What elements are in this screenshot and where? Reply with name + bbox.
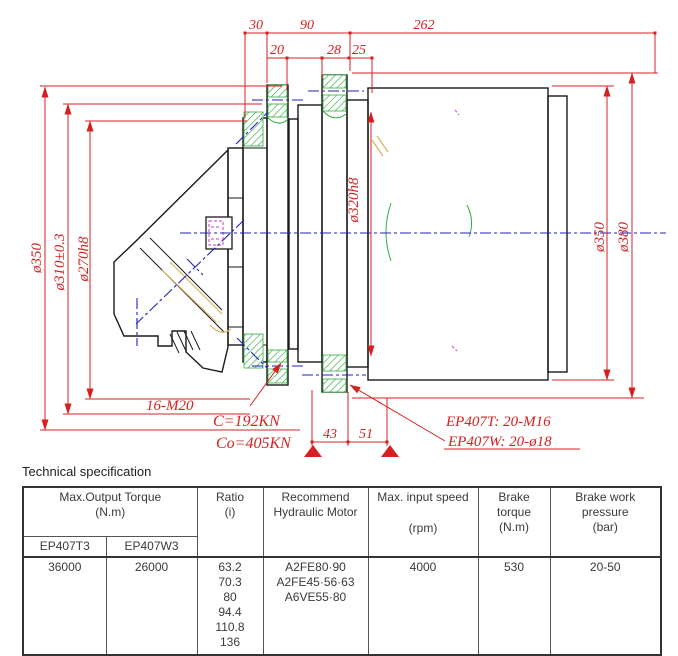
- motor-value: A6VE55·80: [267, 590, 365, 605]
- cell-motors: A2FE80·90 A2FE45·56·63 A6VE55·80: [263, 557, 368, 655]
- cell-brake-torque: 530: [478, 557, 550, 655]
- dim-dia380: ø380: [616, 222, 632, 254]
- ratio-value: 136: [201, 635, 260, 650]
- header-ratio: Ratio (i): [197, 487, 263, 557]
- bolt-sections: [244, 75, 472, 392]
- header-ratio-line1: Ratio: [201, 490, 260, 505]
- cell-speed: 4000: [368, 557, 478, 655]
- header-output-torque: Max.Output Torque (N.m): [23, 487, 197, 537]
- header-brake-torque: Brake torque (N.m): [478, 487, 550, 557]
- note-ep407t: EP407T: 20-M16: [445, 414, 551, 430]
- note-c-dynamic: C=192KN: [213, 413, 281, 430]
- dim-dia350-right: ø350: [592, 222, 608, 254]
- subheader-ep407t3: EP407T3: [23, 537, 106, 558]
- header-pressure-line1: Brake work: [554, 490, 658, 505]
- section-title: Technical specification: [22, 464, 678, 479]
- header-speed-line2: (rpm): [372, 521, 475, 536]
- spline-details: [162, 136, 388, 332]
- header-pressure: Brake work pressure (bar): [550, 487, 661, 557]
- note-ep407w: EP407W: 20-ø18: [447, 434, 552, 450]
- ratio-value: 70.3: [201, 575, 260, 590]
- motor-foot-hatch: [170, 331, 200, 353]
- header-ratio-line2: (i): [201, 505, 260, 520]
- dim-43: 43: [323, 427, 337, 442]
- header-speed: Max. input speed (rpm): [368, 487, 478, 557]
- technical-drawing: 30 90 262 20 28 25 43 51 ø350 ø310±0.3 ø…: [0, 0, 678, 460]
- dim-262: 262: [414, 18, 435, 33]
- cell-pressure: 20-50: [550, 557, 661, 655]
- subheader-ep407w3: EP407W3: [106, 537, 197, 558]
- dim-90: 90: [300, 18, 314, 33]
- datum-triangle-left: [304, 445, 322, 457]
- header-brake-line2: (N.m): [482, 520, 547, 535]
- header-output-torque-unit: (N.m): [27, 505, 194, 520]
- dim-dia320: ø320h8: [346, 177, 362, 224]
- motor-silhouette: [114, 150, 228, 372]
- ratio-value: 94.4: [201, 605, 260, 620]
- header-output-torque-title: Max.Output Torque: [27, 490, 194, 505]
- dim-dia270: ø270h8: [76, 236, 92, 283]
- dim-51: 51: [359, 427, 373, 442]
- cell-torque-w3: 26000: [106, 557, 197, 655]
- cell-ratios: 63.2 70.3 80 94.4 110.8 136: [197, 557, 263, 655]
- dim-30: 30: [248, 18, 263, 33]
- dim-dia310: ø310±0.3: [52, 234, 68, 292]
- motor-value: A2FE80·90: [267, 560, 365, 575]
- header-pressure-line3: (bar): [554, 520, 658, 535]
- datum-triangle-right: [381, 445, 399, 457]
- dim-28: 28: [327, 43, 341, 58]
- page: 30 90 262 20 28 25 43 51 ø350 ø310±0.3 ø…: [0, 0, 678, 656]
- header-motor-line2: Hydraulic Motor: [267, 505, 365, 520]
- dim-25: 25: [352, 43, 366, 58]
- header-speed-line1: Max. input speed: [372, 490, 475, 505]
- dim-dia350-left: ø350: [29, 243, 45, 275]
- centerlines: [136, 91, 666, 375]
- note-c-static: Co=405KN: [216, 435, 292, 452]
- spec-table: Max.Output Torque (N.m) Ratio (i) Recomm…: [22, 486, 662, 656]
- ratio-value: 110.8: [201, 620, 260, 635]
- cell-torque-t3: 36000: [23, 557, 106, 655]
- dim-20: 20: [270, 43, 284, 58]
- header-pressure-line2: pressure: [554, 505, 658, 520]
- header-motor-line1: Recommend: [267, 490, 365, 505]
- header-motor: Recommend Hydraulic Motor: [263, 487, 368, 557]
- note-16-m20: 16-M20: [146, 398, 194, 414]
- ratio-value: 80: [201, 590, 260, 605]
- ratio-value: 63.2: [201, 560, 260, 575]
- motor-value: A2FE45·56·63: [267, 575, 365, 590]
- header-brake-line1: Brake torque: [482, 490, 547, 520]
